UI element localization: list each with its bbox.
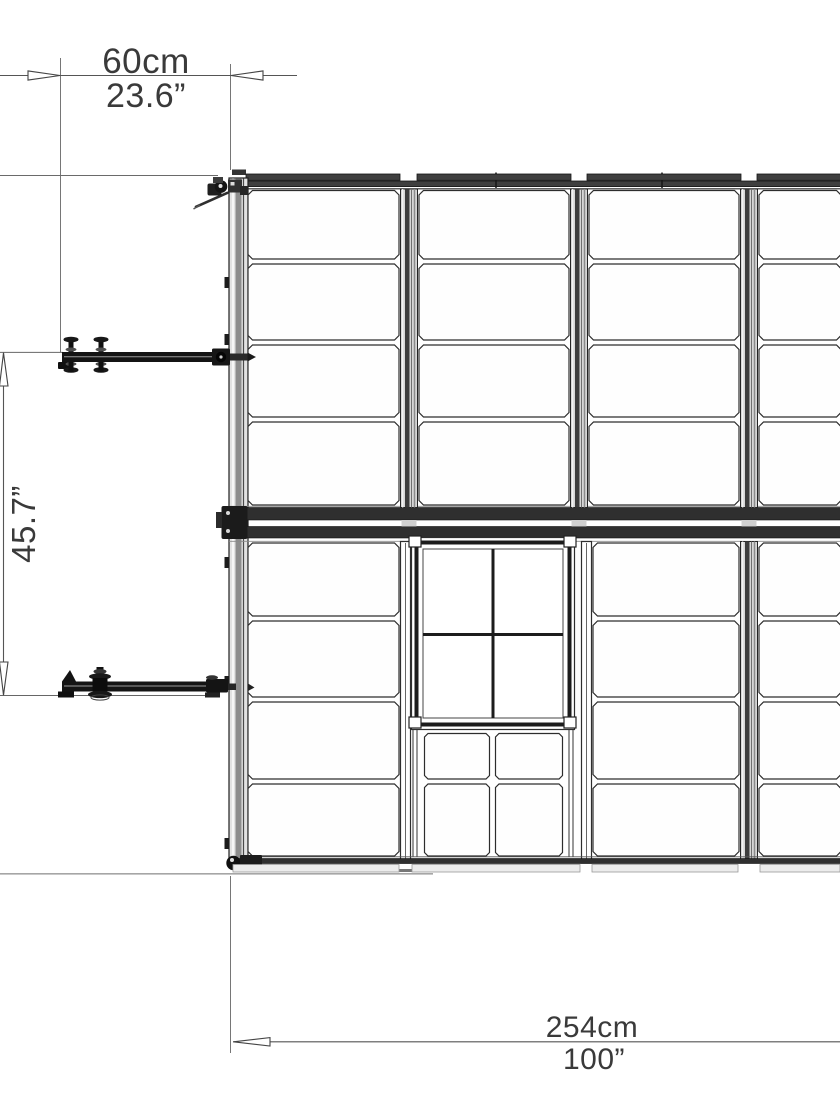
wingnut-stem [69, 362, 74, 372]
wingnut-collar [66, 348, 77, 352]
length-imperial-label: 100” [563, 1043, 625, 1076]
length-metric-label: 254cm [546, 1011, 639, 1044]
arrowhead [231, 71, 263, 80]
ridge-band-lower [229, 527, 840, 539]
glazing-panel [248, 702, 399, 779]
glazing-panel [759, 191, 840, 260]
vent-window-corner-key [409, 536, 421, 547]
base-segment [760, 865, 840, 873]
glazing-panel [425, 734, 490, 780]
mullion-stripe [745, 189, 750, 508]
glazing-panel [759, 345, 840, 417]
arrowhead [0, 353, 8, 386]
wingnut-collar [96, 348, 107, 352]
bolt-head [226, 511, 230, 515]
glazing-panel [419, 422, 569, 505]
side-depth-imperial-label: 45.7” [5, 485, 42, 563]
glazing-panel [759, 422, 840, 505]
top-rail-segment [417, 174, 571, 180]
top-width-metric-label: 60cm [102, 42, 190, 81]
bolt-head [226, 529, 230, 533]
glazing-panel [419, 191, 569, 260]
glazing-panel [248, 543, 399, 616]
greenhouse-top-view-drawing: 60cm 23.6” 45.7” 254cm 100” [0, 0, 840, 1120]
ridge-end-bracket [222, 506, 248, 539]
glazing-panel [589, 264, 739, 340]
wall-nub [225, 277, 230, 288]
glazing-panel [248, 345, 399, 417]
end-bolt [206, 675, 218, 679]
mullion-stripe [575, 189, 580, 508]
bolt-head [219, 184, 223, 188]
blueprint-canvas: 60cm 23.6” 45.7” 254cm 100” [0, 0, 840, 1120]
mullion-stripe [405, 189, 410, 508]
vent-window-corner-key [564, 536, 576, 547]
mid-ridge-band [216, 506, 840, 541]
base-segment [233, 865, 399, 873]
latch-block [228, 180, 242, 193]
glazing-panel [419, 264, 569, 340]
wingnut-stem [99, 362, 104, 372]
wall-pass [230, 354, 248, 361]
glazing-panel [496, 734, 563, 780]
pivot-pin [219, 355, 222, 358]
ridge-band-upper [229, 508, 840, 521]
arrowhead [234, 1038, 271, 1046]
top-rail-nub [232, 170, 246, 176]
vent-window-corner-key [409, 717, 421, 728]
wingnut-cap [94, 337, 109, 343]
glazing-panel [593, 621, 739, 697]
ridge-gap-tab [402, 520, 417, 527]
side-depth-dimension: 45.7” [0, 352, 216, 695]
length-dimension: 254cm 100” [231, 876, 840, 1076]
glazing-panel [759, 702, 840, 779]
glazing-panel [248, 191, 399, 260]
glazing-panel [589, 345, 739, 417]
arrowhead [0, 662, 8, 695]
glazing-panel [589, 422, 739, 505]
base-segment [412, 865, 580, 873]
glazing-panel [593, 784, 739, 856]
glazing-panel [759, 543, 840, 616]
end-foot [205, 693, 220, 698]
top-width-imperial-label: 23.6” [106, 77, 186, 115]
glazing-panel [593, 543, 739, 616]
arrowhead [28, 71, 60, 80]
glazing-panel [425, 784, 490, 856]
base-segment [592, 865, 738, 873]
wingbolt-hub [93, 678, 108, 691]
top-rail-band [229, 181, 840, 187]
mullion-stripe [745, 542, 750, 864]
top-rail [229, 170, 840, 189]
glazing-panel [759, 621, 840, 697]
glazing-panel [759, 264, 840, 340]
wall-nub [225, 334, 230, 345]
louver-end-bracket [206, 679, 228, 693]
wall-pin [228, 684, 236, 691]
glazing-panel [496, 784, 563, 856]
top-rail-segment [587, 174, 741, 180]
glazing-panel [419, 345, 569, 417]
ridge-end-nub [216, 512, 222, 528]
greenhouse-frame [0, 170, 840, 874]
top-rail-segment [757, 174, 840, 180]
glazing-panel [589, 191, 739, 260]
bottom-rail-band [229, 859, 840, 864]
bolt-head [230, 858, 234, 862]
louver-foot [58, 692, 74, 698]
latch-slit [231, 182, 235, 186]
wall-nub [225, 557, 230, 568]
glazing-panel [248, 784, 399, 856]
latch-bit [213, 177, 223, 183]
ridge-gap-tab [742, 520, 757, 527]
louver-spike [62, 670, 76, 682]
bottom-rail [0, 855, 840, 874]
glazing-panel [593, 702, 739, 779]
glazing-panel [759, 784, 840, 856]
glazing-panel [248, 621, 399, 697]
wingbolt-cap [94, 669, 107, 674]
latch-bit [240, 186, 248, 195]
glazing-panel [248, 422, 399, 505]
wall-nub [225, 838, 230, 849]
top-rail-segment [246, 174, 400, 180]
glazing-panel [248, 264, 399, 340]
wingnut-cap [64, 337, 79, 343]
ridge-gap-tab [572, 520, 587, 527]
vent-window-corner-key [564, 717, 576, 728]
